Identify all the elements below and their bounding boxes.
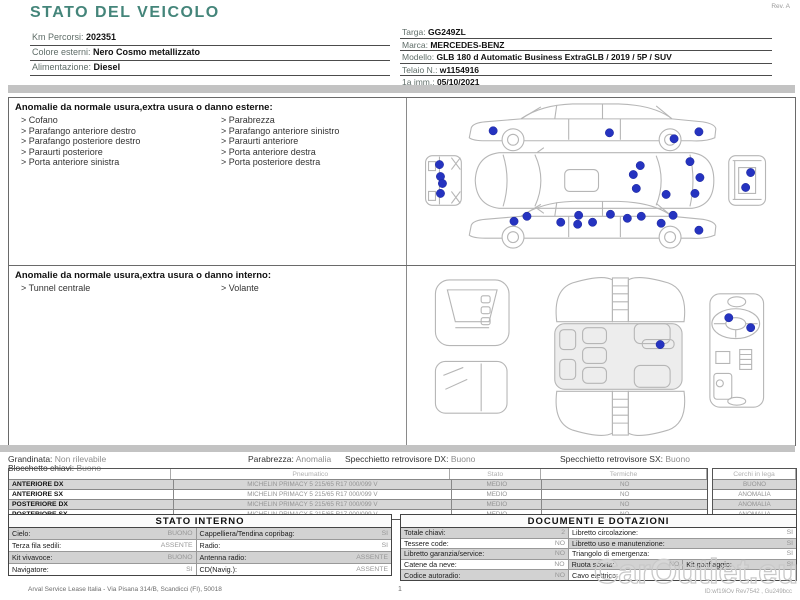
- exterior-items-column-2: ParabrezzaParafango anteriore sinistroPa…: [221, 115, 411, 168]
- table-row: Tessere code:NOLibretto uso e manutenzio…: [401, 538, 796, 549]
- damage-dot: [523, 212, 531, 220]
- field-label: Alimentazione:: [32, 62, 94, 72]
- interior-anomalies-section: Anomalie da normale usura,extra usura o …: [8, 265, 796, 446]
- field-label: Targa:: [402, 27, 428, 37]
- table-cell: Catene da neve:NO: [401, 560, 569, 570]
- field-label: Catene da neve:: [404, 560, 457, 569]
- alloy-header-row: Cerchi in lega: [713, 469, 796, 479]
- damage-dot: [588, 218, 596, 226]
- table-row: Navigatore:SICD(Navig.):ASSENTE: [9, 563, 391, 575]
- table-cell: Kit gonfiaggio:SI: [683, 560, 796, 570]
- field-label: Radio:: [200, 541, 221, 550]
- field-value: Diesel: [94, 62, 121, 72]
- damage-dot: [623, 214, 631, 222]
- field-value: ASSENTE: [356, 554, 388, 561]
- table-cell: CD(Navig.):ASSENTE: [197, 564, 391, 575]
- alloy-state: ANOMALIA: [713, 490, 796, 499]
- table-row: Totale chiavi:2Libretto circolazione:SI: [401, 528, 796, 538]
- car-interior-diagram: [407, 266, 795, 445]
- damage-item: Porta posteriore destra: [221, 157, 411, 168]
- damage-dot: [669, 211, 677, 219]
- field-value: SI: [787, 540, 793, 547]
- tyre-state: MEDIO: [452, 490, 542, 499]
- damage-dot: [574, 211, 582, 219]
- damage-item: Volante: [221, 283, 411, 294]
- damage-dot: [686, 157, 694, 165]
- alloy-row: ANOMALIA: [713, 489, 796, 499]
- footer-document-id: ID:wf19iOv Rev7542 , Gu249bcc: [705, 589, 792, 595]
- field-value: SI: [787, 550, 793, 557]
- field-label: Cielo:: [12, 529, 30, 538]
- damage-item: Tunnel centrale: [21, 283, 211, 294]
- table-row: Terza fila sedili:ASSENTERadio:SI: [9, 539, 391, 551]
- damage-dot: [657, 219, 665, 227]
- alloy-column-header: Cerchi in lega: [713, 469, 796, 479]
- tyre-position: POSTERIORE DX: [9, 500, 174, 509]
- damage-item: Porta anteriore destra: [221, 147, 411, 158]
- field-value: NO: [554, 561, 564, 568]
- table-cell: Ruota scorta:NO: [569, 560, 684, 570]
- table-cell: Libretto uso e manutenzione:SI: [569, 539, 796, 549]
- field-value: SI: [787, 529, 793, 536]
- field-label: Tessere code:: [404, 539, 449, 548]
- field-value: MERCEDES-BENZ: [430, 40, 504, 50]
- vehicle-field-row: Alimentazione: Diesel: [30, 61, 390, 76]
- interior-state-title: STATO INTERNO: [9, 515, 391, 528]
- footer-page-number: 1: [398, 586, 402, 593]
- vehicle-field-row: Marca: MERCEDES-BENZ: [400, 39, 772, 52]
- exterior-items-column-1: CofanoParafango anteriore destroParafang…: [21, 115, 211, 168]
- field-value: NO: [555, 540, 565, 547]
- divider-bar: [0, 445, 795, 452]
- alloy-state: ANOMALIA: [713, 500, 796, 509]
- field-label: Kit vivavoce:: [12, 553, 52, 562]
- tyre-spec: MICHELIN PRIMACY 5 215/65 R17 000/099 V: [174, 480, 453, 489]
- alloy-row: ANOMALIA: [713, 499, 796, 509]
- documents-equipment-table: DOCUMENTI E DOTAZIONI Totale chiavi:2Lib…: [400, 514, 797, 581]
- damage-dot: [670, 135, 678, 143]
- vehicle-info-left: Km Percorsi: 202351Colore esterni: Nero …: [30, 31, 390, 76]
- damage-dot: [725, 314, 733, 322]
- tyre-state: MEDIO: [452, 500, 542, 509]
- exterior-anomalies-list-pane: Anomalie da normale usura,extra usura o …: [9, 98, 407, 265]
- damage-dot: [629, 170, 637, 178]
- field-label: Codice autoradio:: [404, 571, 460, 580]
- tyre-column-header: Termiche: [541, 469, 707, 479]
- field-value: SI: [382, 542, 388, 549]
- car-exterior-diagram: [407, 98, 795, 265]
- field-value: SI: [382, 530, 388, 537]
- field-value: NO: [669, 561, 679, 568]
- field-value: Nero Cosmo metallizzato: [93, 47, 200, 57]
- field-value: BUONO: [168, 530, 193, 537]
- revision-label: Rev. A: [771, 3, 790, 10]
- field-label: Ruota scorta:: [572, 560, 615, 569]
- vehicle-field-row: Colore esterni: Nero Cosmo metallizzato: [30, 46, 390, 61]
- field-label: Libretto garanzia/service:: [404, 549, 484, 558]
- field-label: Cappelliera/Tendina copribag:: [200, 529, 295, 538]
- field-value: BUONO: [168, 554, 193, 561]
- field-value: ASSENTE: [356, 566, 388, 573]
- alloy-state: BUONO: [713, 480, 796, 489]
- vehicle-info-right: Targa: GG249ZLMarca: MERCEDES-BENZModell…: [400, 26, 772, 89]
- damage-dot: [436, 189, 444, 197]
- field-value: 202351: [86, 32, 116, 42]
- damage-dot: [741, 183, 749, 191]
- field-label: Telaio N.:: [402, 65, 440, 75]
- damage-dot: [510, 217, 518, 225]
- field-label: Modello:: [402, 52, 437, 62]
- table-cell: Navigatore:SI: [9, 564, 197, 575]
- field-label: Kit gonfiaggio:: [686, 560, 732, 569]
- field-value: w1154916: [440, 65, 479, 75]
- field-label: Terza fila sedili:: [12, 541, 61, 550]
- vehicle-field-row: Modello: GLB 180 d Automatic Business Ex…: [400, 51, 772, 64]
- damage-dot: [435, 160, 443, 168]
- damage-dot: [438, 179, 446, 187]
- damage-dot: [691, 189, 699, 197]
- exterior-anomalies-heading: Anomalie da normale usura,extra usura o …: [9, 98, 406, 115]
- field-label: Colore esterni:: [32, 47, 93, 57]
- damage-dot: [695, 226, 703, 234]
- tyre-state: MEDIO: [452, 480, 542, 489]
- field-label: Navigatore:: [12, 565, 49, 574]
- table-cell: Triangolo di emergenza:SI: [569, 549, 796, 559]
- table-cell: Kit vivavoce:BUONO: [9, 552, 197, 563]
- tyre-winter: NO: [542, 490, 707, 499]
- damage-dot: [557, 218, 565, 226]
- damage-dot: [636, 161, 644, 169]
- vehicle-condition-report-page: STATO DEL VEICOLO Rev. A Km Percorsi: 20…: [0, 0, 800, 600]
- field-value: 2: [561, 529, 565, 536]
- field-label: Libretto circolazione:: [572, 528, 638, 537]
- field-value: NO: [555, 550, 565, 557]
- tyre-table: PneumaticoStatoTermicheANTERIORE DXMICHE…: [8, 468, 708, 520]
- interior-items-column-1: Tunnel centrale: [21, 283, 211, 294]
- table-cell: Cavo elettrico:: [569, 570, 796, 580]
- damage-item: Paraurti posteriore: [21, 147, 211, 158]
- damage-dot: [696, 173, 704, 181]
- field-label: Totale chiavi:: [404, 528, 446, 537]
- damage-dot: [637, 212, 645, 220]
- tyre-winter: NO: [542, 480, 707, 489]
- table-row: Kit vivavoce:BUONOAntenna radio:ASSENTE: [9, 551, 391, 563]
- tyre-position: ANTERIORE SX: [9, 490, 174, 499]
- table-row: Catene da neve:NORuota scorta:NOKit gonf…: [401, 559, 796, 570]
- documents-equipment-title: DOCUMENTI E DOTAZIONI: [401, 515, 796, 528]
- damage-item: Parafango anteriore sinistro: [221, 126, 411, 137]
- vehicle-field-row: Telaio N.: w1154916: [400, 64, 772, 77]
- damage-item: Parafango anteriore destro: [21, 126, 211, 137]
- interior-damage-diagram: [407, 266, 795, 445]
- field-value: NO: [555, 572, 565, 579]
- exterior-anomalies-section: Anomalie da normale usura,extra usura o …: [8, 97, 796, 266]
- interior-items-column-2: Volante: [221, 283, 411, 294]
- field-label: Km Percorsi:: [32, 32, 86, 42]
- field-label: CD(Navig.):: [200, 565, 238, 574]
- table-row: Libretto garanzia/service:NOTriangolo di…: [401, 548, 796, 559]
- alloy-wheels-table: Cerchi in legaBUONOANOMALIAANOMALIAANOMA…: [712, 468, 797, 520]
- interior-state-table: STATO INTERNO Cielo:BUONOCappelliera/Ten…: [8, 514, 392, 576]
- damage-dot: [746, 168, 754, 176]
- table-cell: Cappelliera/Tendina copribag:SI: [197, 528, 391, 539]
- table-cell: Cielo:BUONO: [9, 528, 197, 539]
- table-row: Cielo:BUONOCappelliera/Tendina copribag:…: [9, 528, 391, 539]
- field-value: SI: [186, 566, 192, 573]
- field-value: GG249ZL: [428, 27, 466, 37]
- table-cell: Libretto garanzia/service:NO: [401, 549, 569, 559]
- table-cell: Antenna radio:ASSENTE: [197, 552, 391, 563]
- tyre-spec: MICHELIN PRIMACY 5 215/65 R17 000/099 V: [174, 500, 453, 509]
- divider-bar: [8, 85, 795, 93]
- tyre-column-header: [9, 469, 171, 479]
- tyre-column-header: Stato: [450, 469, 540, 479]
- table-cell: Radio:SI: [197, 540, 391, 551]
- tyre-position: ANTERIORE DX: [9, 480, 174, 489]
- damage-dot: [632, 184, 640, 192]
- footer-company-address: Arval Service Lease Italia - Via Pisana …: [28, 586, 222, 593]
- alloy-row: BUONO: [713, 479, 796, 489]
- damage-dot: [656, 340, 664, 348]
- field-label: Libretto uso e manutenzione:: [572, 539, 665, 548]
- page-title: STATO DEL VEICOLO: [30, 4, 220, 22]
- damage-dot: [573, 220, 581, 228]
- table-row: Codice autoradio:NOCavo elettrico:: [401, 569, 796, 580]
- damage-item: Parafango posteriore destro: [21, 136, 211, 147]
- field-label: Triangolo di emergenza:: [572, 549, 649, 558]
- tyre-row: ANTERIORE DXMICHELIN PRIMACY 5 215/65 R1…: [9, 479, 707, 489]
- tyre-header-row: PneumaticoStatoTermiche: [9, 469, 707, 479]
- damage-item: Porta anteriore sinistra: [21, 157, 211, 168]
- damage-item: Parabrezza: [221, 115, 411, 126]
- damage-dot: [746, 323, 754, 331]
- tyre-row: ANTERIORE SXMICHELIN PRIMACY 5 215/65 R1…: [9, 489, 707, 499]
- tyre-winter: NO: [542, 500, 707, 509]
- field-label: Antenna radio:: [200, 553, 247, 562]
- tyre-column-header: Pneumatico: [171, 469, 450, 479]
- damage-dot: [605, 129, 613, 137]
- table-cell: Libretto circolazione:SI: [569, 528, 796, 538]
- damage-dot: [606, 210, 614, 218]
- vehicle-field-row: Km Percorsi: 202351: [30, 31, 390, 46]
- damage-item: Paraurti anteriore: [221, 136, 411, 147]
- field-label: Marca:: [402, 40, 430, 50]
- exterior-damage-dots: [435, 127, 754, 235]
- table-cell: Totale chiavi:2: [401, 528, 569, 538]
- damage-dot: [662, 190, 670, 198]
- field-value: GLB 180 d Automatic Business ExtraGLB / …: [437, 52, 672, 62]
- table-cell: Tessere code:NO: [401, 539, 569, 549]
- vehicle-field-row: Targa: GG249ZL: [400, 26, 772, 39]
- damage-dot: [489, 127, 497, 135]
- damage-item: Cofano: [21, 115, 211, 126]
- interior-anomalies-list-pane: Anomalie da normale usura,extra usura o …: [9, 266, 407, 445]
- exterior-damage-diagram: [407, 98, 795, 265]
- tyre-row: POSTERIORE DXMICHELIN PRIMACY 5 215/65 R…: [9, 499, 707, 509]
- tyre-spec: MICHELIN PRIMACY 5 215/65 R17 000/099 V: [174, 490, 453, 499]
- damage-dot: [695, 128, 703, 136]
- table-cell: Terza fila sedili:ASSENTE: [9, 540, 197, 551]
- field-label: Cavo elettrico:: [572, 571, 618, 580]
- field-value: ASSENTE: [161, 542, 193, 549]
- field-value: SI: [787, 561, 793, 568]
- interior-anomalies-heading: Anomalie da normale usura,extra usura o …: [9, 266, 406, 283]
- table-cell: Codice autoradio:NO: [401, 570, 569, 580]
